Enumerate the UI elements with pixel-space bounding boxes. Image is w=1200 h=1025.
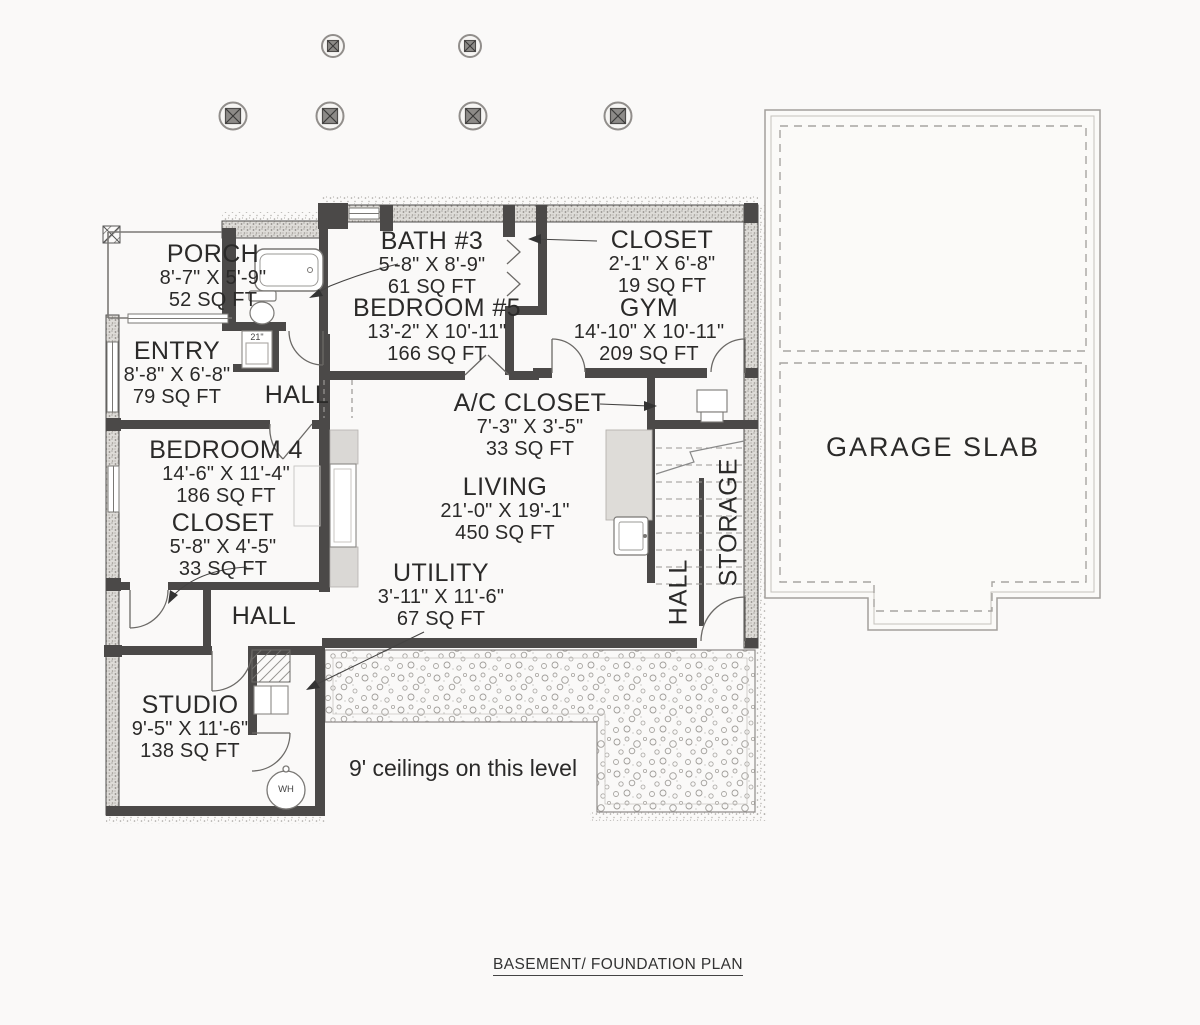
- room-label-porch: PORCH 8'-7" X 5'-9" 52 SQ FT: [160, 241, 267, 311]
- hall-label-upper: HALL: [265, 381, 330, 410]
- garage-slab-label: GARAGE SLAB: [826, 432, 1040, 463]
- room-dims: 7'-3" X 3'-5": [454, 416, 607, 438]
- room-label-bedroom4: BEDROOM 4 14'-6" X 11'-4" 186 SQ FT: [149, 437, 303, 507]
- room-area: 166 SQ FT: [353, 343, 521, 365]
- room-name: BATH #3: [379, 228, 486, 254]
- room-area: 450 SQ FT: [440, 522, 569, 544]
- window: [108, 466, 119, 512]
- room-label-studio: STUDIO 9'-5" X 11'-6" 138 SQ FT: [132, 692, 249, 762]
- room-dims: 5'-8" X 4'-5": [170, 536, 277, 558]
- room-label-closet4: CLOSET 5'-8" X 4'-5" 33 SQ FT: [170, 510, 277, 580]
- corner-pier-marker: [103, 226, 120, 243]
- room-dims: 5'-8" X 8'-9": [379, 254, 486, 276]
- room-dims: 3'-11" X 11'-6": [378, 586, 504, 608]
- room-dims: 9'-5" X 11'-6": [132, 718, 249, 740]
- room-name: A/C CLOSET: [454, 390, 607, 416]
- room-area: 138 SQ FT: [132, 740, 249, 762]
- room-area: 33 SQ FT: [170, 558, 277, 580]
- closet4-door: [130, 590, 168, 628]
- room-area: 33 SQ FT: [454, 438, 607, 460]
- window: [107, 342, 118, 412]
- room-dims: 2'-1" X 6'-8": [609, 253, 716, 275]
- column-marker: [317, 103, 344, 130]
- utility-chase: [252, 650, 290, 682]
- closet-bifold-doors: [507, 240, 520, 296]
- window: [128, 314, 228, 323]
- room-dims: 14'-6" X 11'-4": [149, 463, 303, 485]
- room-name: BEDROOM 4: [149, 437, 303, 463]
- storage-label: STORAGE: [715, 458, 744, 587]
- bath-door: [289, 331, 323, 365]
- room-dims: 21'-0" X 19'-1": [440, 500, 569, 522]
- room-area: 79 SQ FT: [124, 386, 231, 408]
- window: [349, 208, 379, 219]
- hall-label-lower: HALL: [232, 602, 297, 631]
- room-label-bath3: BATH #3 5'-8" X 8'-9" 61 SQ FT: [379, 228, 486, 298]
- room-name: PORCH: [160, 241, 267, 267]
- room-name: CLOSET: [170, 510, 277, 536]
- column-marker: [460, 103, 487, 130]
- washer-dryer: [254, 686, 288, 714]
- ceiling-note: 9' ceilings on this level: [349, 755, 577, 782]
- closet-top-leader: [528, 234, 597, 244]
- room-label-living: LIVING 21'-0" X 19'-1" 450 SQ FT: [440, 474, 569, 544]
- room-name: GYM: [574, 295, 725, 321]
- studio-door: [212, 651, 252, 691]
- column-marker: [322, 35, 344, 57]
- room-label-utility: UTILITY 3'-11" X 11'-6" 67 SQ FT: [378, 560, 504, 630]
- basement-floor-plan: PORCH 8'-7" X 5'-9" 52 SQ FT BATH #3 5'-…: [0, 0, 1200, 1025]
- sheet-title: BASEMENT/ FOUNDATION PLAN: [493, 956, 743, 976]
- room-dims: 14'-10" X 10'-11": [574, 321, 725, 343]
- room-name: CLOSET: [609, 227, 716, 253]
- utility-door: [252, 733, 290, 771]
- room-area: 67 SQ FT: [378, 608, 504, 630]
- room-label-closet-top: CLOSET 2'-1" X 6'-8" 19 SQ FT: [609, 227, 716, 297]
- room-name: UTILITY: [378, 560, 504, 586]
- room-dims: 13'-2" X 10'-11": [353, 321, 521, 343]
- room-name: STUDIO: [132, 692, 249, 718]
- room-area: 186 SQ FT: [149, 485, 303, 507]
- room-label-ac-closet: A/C CLOSET 7'-3" X 3'-5" 33 SQ FT: [454, 390, 607, 460]
- column-marker: [605, 103, 632, 130]
- room-label-gym: GYM 14'-10" X 10'-11" 209 SQ FT: [574, 295, 725, 365]
- room-label-entry: ENTRY 8'-8" X 6'-8" 79 SQ FT: [124, 338, 231, 408]
- column-marker: [459, 35, 481, 57]
- room-area: 209 SQ FT: [574, 343, 725, 365]
- ac-unit: [697, 390, 727, 422]
- water-heater-label: WH: [278, 784, 294, 795]
- vanity-width-label: 21": [250, 332, 263, 342]
- room-name: LIVING: [440, 474, 569, 500]
- room-name: BEDROOM #5: [353, 295, 521, 321]
- garage-slab-outline: [765, 110, 1100, 630]
- room-dims: 8'-8" X 6'-8": [124, 364, 231, 386]
- hall-exterior-door: [701, 597, 745, 641]
- room-dims: 8'-7" X 5'-9": [160, 267, 267, 289]
- room-label-bedroom5: BEDROOM #5 13'-2" X 10'-11" 166 SQ FT: [353, 295, 521, 365]
- column-marker: [220, 103, 247, 130]
- hall-label-stair: HALL: [665, 559, 694, 626]
- gravel-area: [325, 650, 755, 812]
- room-name: ENTRY: [124, 338, 231, 364]
- wet-bar: [606, 430, 652, 555]
- room-area: 52 SQ FT: [160, 289, 267, 311]
